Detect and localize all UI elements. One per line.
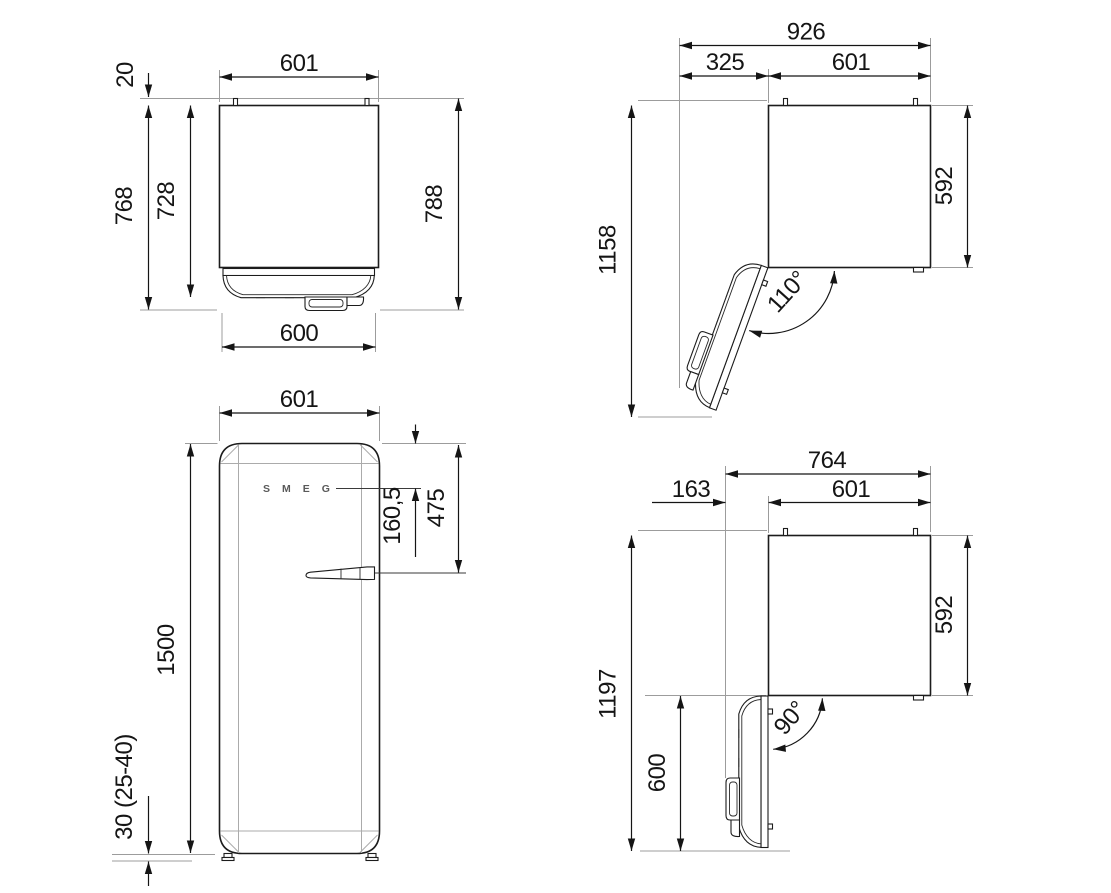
hinge-pin — [234, 99, 238, 106]
dim-logo-from-top: 160,5 — [379, 487, 406, 545]
cabinet-top-outline — [220, 106, 379, 268]
fridge-front-outline — [220, 444, 380, 854]
dim-door-projection: 163 — [672, 476, 711, 503]
fridge-door-closed-top — [223, 269, 375, 311]
leveling-foot — [222, 858, 234, 861]
leveling-foot — [368, 854, 376, 858]
view-top-open-90: 90° 764 163 601 1197 600 592 — [595, 447, 974, 851]
dim-hinge-pin-offset: 20 — [112, 62, 139, 88]
dim-depth-with-door: 768 — [111, 187, 138, 226]
dim-overall-depth: 1197 — [595, 669, 622, 719]
dim-door-angle: 90° — [769, 696, 812, 740]
dim-door-angle: 110° — [762, 266, 813, 318]
dim-cabinet-depth: 728 — [153, 182, 180, 221]
fridge-door-open-90 — [726, 696, 773, 848]
leveling-foot — [366, 858, 378, 861]
dim-door-projection: 325 — [706, 49, 745, 76]
dim-door-width: 600 — [280, 320, 319, 347]
dim-cabinet-depth: 592 — [931, 167, 958, 206]
hinge-pin — [784, 529, 788, 536]
dim-total-depth: 788 — [421, 185, 448, 224]
cabinet-top-outline — [769, 106, 931, 268]
hinge-pin — [784, 99, 788, 106]
hinge-pin — [914, 529, 918, 536]
view-front: SMEG 601 1500 30 (25-40) 475 160,5 — [111, 386, 466, 886]
dim-front-width: 601 — [280, 386, 319, 413]
lower-hinge — [914, 696, 924, 701]
dim-overall-depth: 1158 — [595, 225, 622, 275]
lower-hinge — [914, 268, 924, 273]
dim-top-width: 601 — [280, 50, 319, 77]
dim-cabinet-width: 601 — [832, 476, 871, 503]
dim-cabinet-depth: 592 — [931, 596, 958, 635]
view-top-closed: 601 20 768 728 788 600 — [111, 50, 464, 352]
leveling-foot — [224, 854, 232, 858]
hinge-pin — [914, 99, 918, 106]
view-top-open-110: 110° 926 325 601 1158 592 — [595, 19, 974, 418]
dim-open-door-depth: 600 — [644, 754, 671, 793]
brand-logo: SMEG — [263, 483, 342, 495]
dim-height: 1500 — [153, 624, 180, 676]
dim-overall-width: 926 — [787, 19, 826, 46]
fridge-dimension-diagram: 601 20 768 728 788 600 110° 926 325 — [0, 0, 1111, 893]
dim-handle-from-top: 475 — [423, 489, 450, 528]
cabinet-top-outline — [769, 536, 931, 696]
dim-cabinet-width: 601 — [832, 49, 871, 76]
dim-overall-width: 764 — [808, 447, 847, 474]
hinge-pin — [365, 99, 369, 106]
dim-feet-height: 30 (25-40) — [111, 734, 138, 840]
technical-drawing-canvas: 601 20 768 728 788 600 110° 926 325 — [0, 0, 1111, 893]
